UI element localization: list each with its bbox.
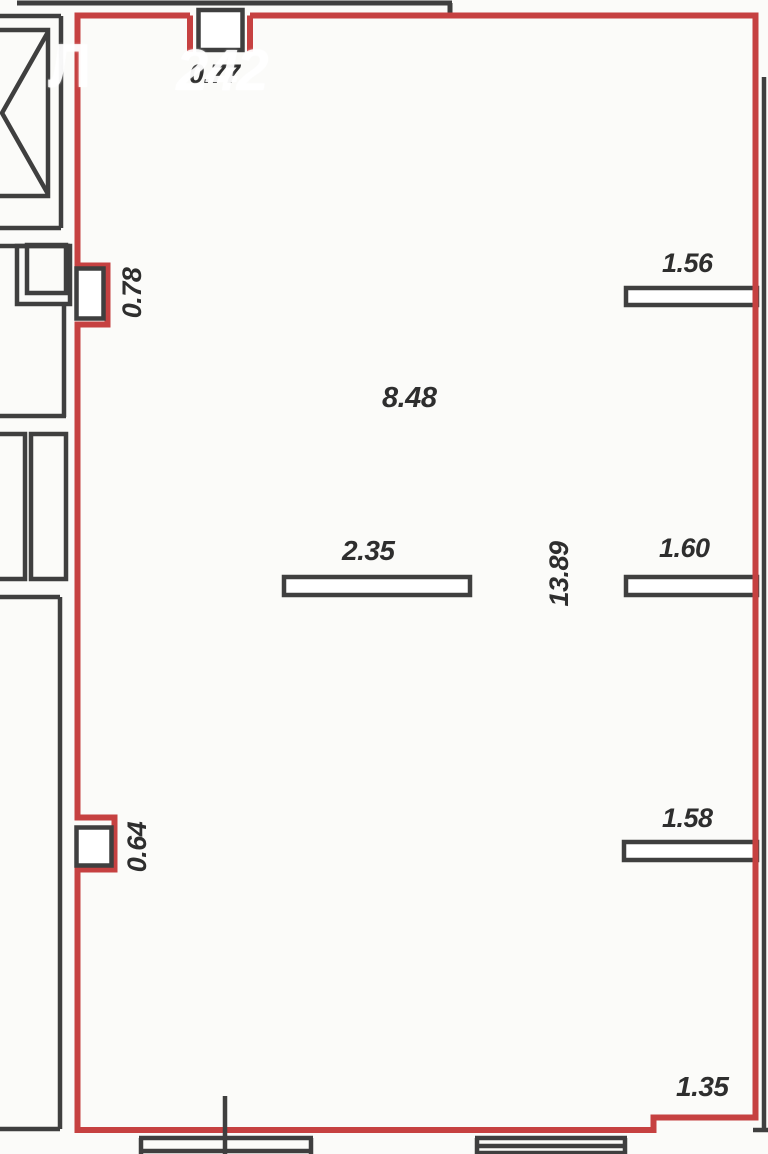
dim-partition-mid: 2.35 [342,537,395,565]
dim-stub-middle: 1.60 [659,535,710,562]
dim-niche-upper: 0.78 [118,262,146,324]
niche-upper-window [77,269,104,319]
bottom-window-left [139,1096,313,1154]
watermark-digits: 242 [176,42,267,100]
partition-stubs [284,288,757,860]
dim-step-bottom: 1.35 [676,1073,729,1101]
floor-plan-canvas: 0.77 0.78 8.48 2.35 13.89 1.56 1.60 1.58… [0,0,768,1154]
utility-shaft-room [0,245,70,304]
watermark-letter: Л [48,36,92,98]
neighbor-wall-lower [0,597,60,1129]
floor-plan-linework [0,0,768,1154]
niche-lower-window [77,828,112,866]
bottom-window-right [475,1138,627,1154]
dim-niche-lower: 0.64 [123,816,151,878]
stub-upper-bar [626,288,757,305]
wall-openings [77,10,243,866]
dim-stub-lower: 1.58 [662,805,713,832]
dim-stub-upper: 1.56 [662,250,713,277]
stub-lower-bar [624,842,757,860]
stub-middle-bar [626,577,757,595]
elevator-door-chevron-icon [2,32,48,194]
partition-mid-bar [284,577,470,595]
dim-room-length: 13.89 [545,534,573,614]
neighbor-wall-mid [0,304,66,417]
dim-room-width: 8.48 [382,384,436,413]
neighbor-duct-rects [0,434,66,579]
unit-outline-red [78,16,756,1131]
